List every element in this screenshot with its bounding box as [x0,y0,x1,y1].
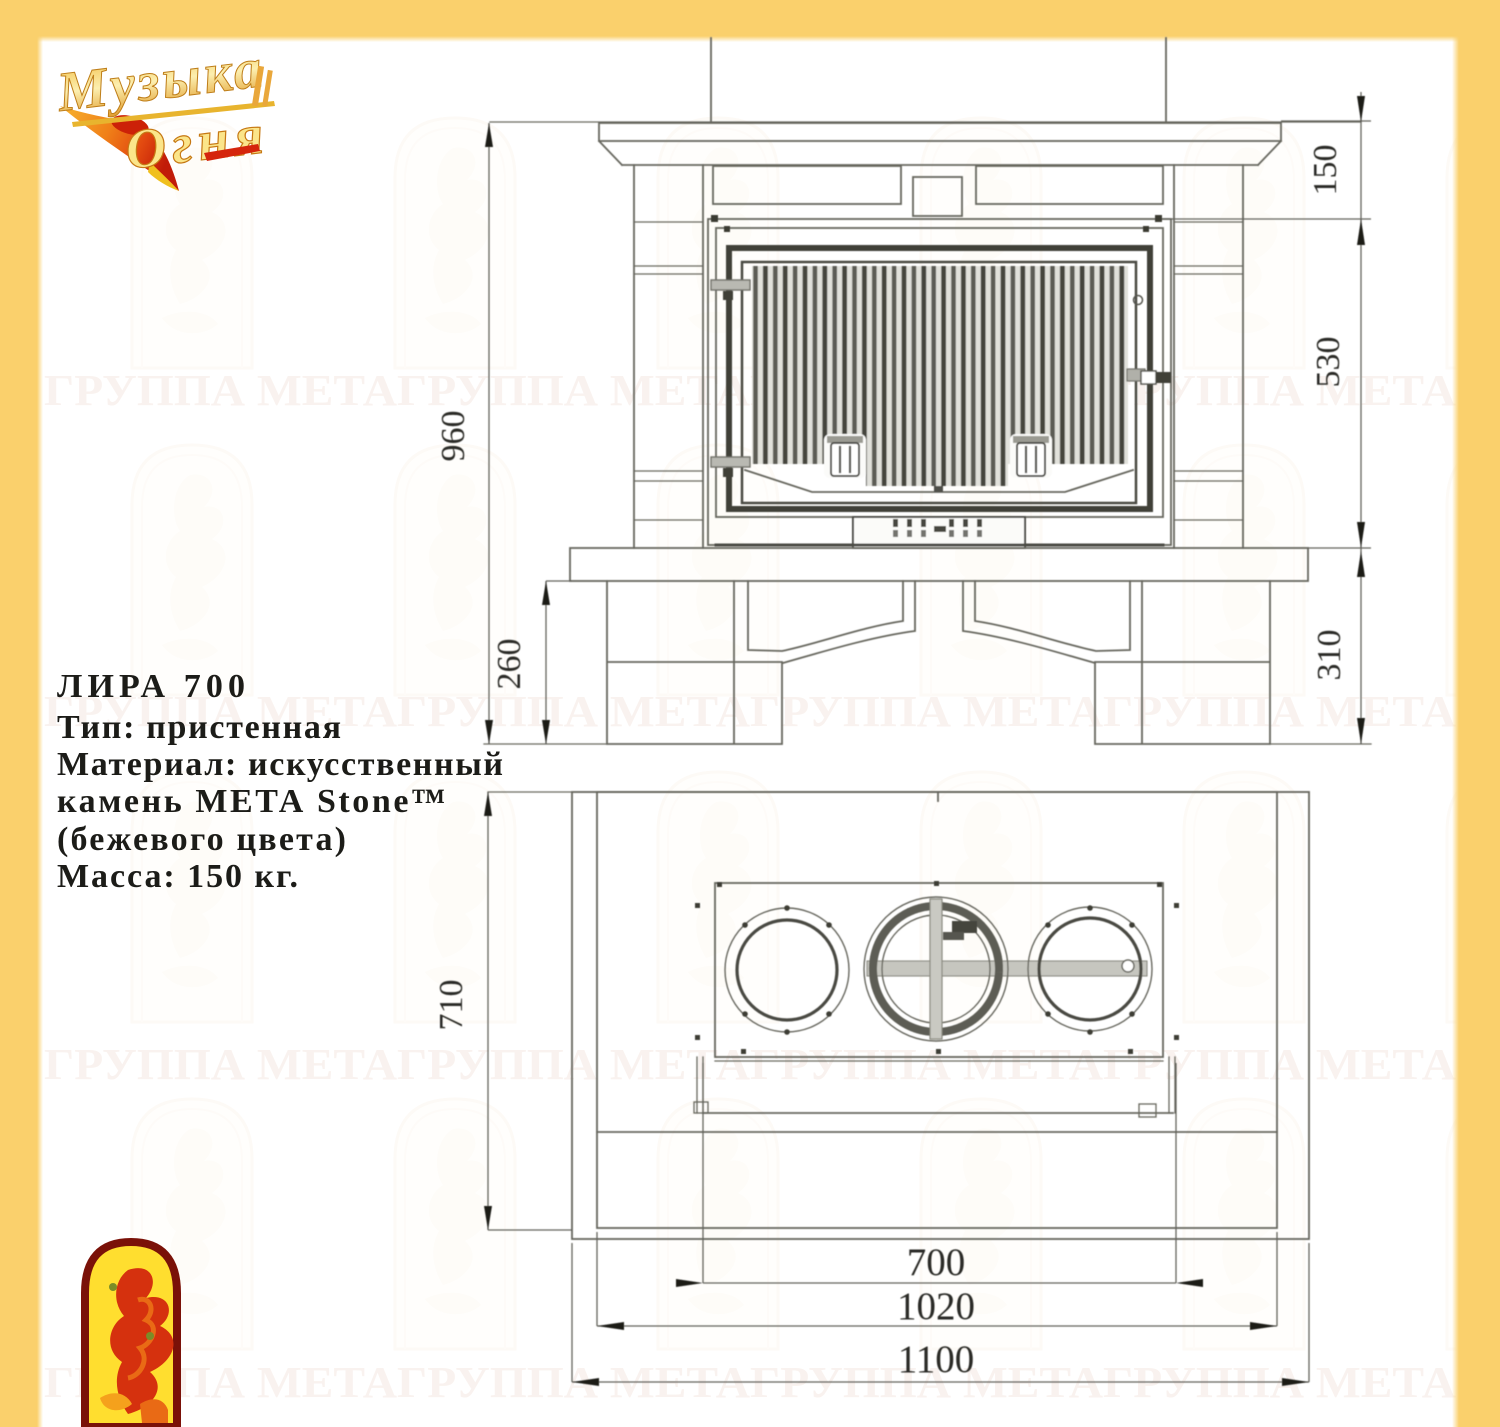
svg-text:960: 960 [435,411,472,462]
svg-text:Масса: 150 кг.: Масса: 150 кг. [57,858,298,895]
svg-text:530: 530 [1310,337,1347,388]
svg-text:камень МЕТА Stone™: камень МЕТА Stone™ [57,783,445,820]
svg-text:1100: 1100 [898,1338,975,1381]
svg-text:150: 150 [1307,145,1344,196]
svg-text:Тип: пристенная: Тип: пристенная [57,709,341,746]
svg-text:ГРУППА МЕТАГРУППА МЕТАГРУППА М: ГРУППА МЕТАГРУППА МЕТАГРУППА МЕТАГРУППА … [44,366,1456,415]
svg-text:Материал: искусственный: Материал: искусственный [57,746,503,783]
svg-text:ГРУППА МЕТАГРУППА МЕТАГРУППА М: ГРУППА МЕТАГРУППА МЕТАГРУППА МЕТАГРУППА … [44,1040,1456,1089]
svg-text:700: 700 [907,1241,966,1284]
svg-text:260: 260 [491,639,528,690]
svg-text:(бежевого цвета): (бежевого цвета) [57,821,346,858]
svg-text:1020: 1020 [897,1285,975,1328]
svg-text:710: 710 [433,980,470,1031]
svg-text:310: 310 [1311,630,1348,681]
